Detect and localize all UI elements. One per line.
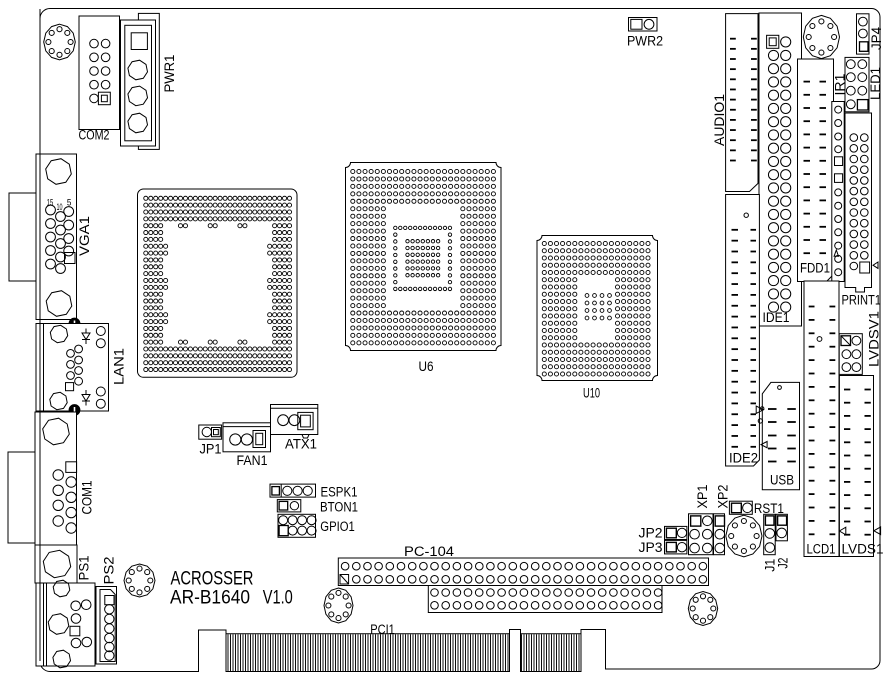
svg-text:ESPK1: ESPK1: [321, 485, 358, 501]
svg-text:10: 10: [57, 202, 63, 212]
svg-text:LVDS1: LVDS1: [842, 542, 884, 558]
svg-text:PRINT1: PRINT1: [842, 293, 882, 309]
svg-text:PS1: PS1: [77, 555, 93, 580]
svg-text:COM1: COM1: [80, 480, 96, 514]
svg-text:ATX1: ATX1: [285, 437, 317, 453]
svg-text:IDE2: IDE2: [729, 451, 758, 467]
svg-text:PWR2: PWR2: [627, 34, 663, 50]
svg-text:GPIO1: GPIO1: [320, 519, 355, 535]
svg-text:5: 5: [67, 198, 72, 208]
svg-text:XP1: XP1: [695, 484, 711, 508]
svg-text:LED1: LED1: [868, 67, 884, 100]
svg-text:PWR1: PWR1: [162, 54, 178, 92]
svg-text:COM2: COM2: [79, 128, 110, 144]
svg-text:JP4: JP4: [869, 27, 885, 50]
svg-text:JP3: JP3: [639, 540, 663, 556]
svg-text:LCD1: LCD1: [807, 542, 836, 558]
svg-text:BTON1: BTON1: [320, 500, 358, 516]
svg-text:AUDIO1: AUDIO1: [712, 94, 728, 146]
svg-text:IDE1: IDE1: [763, 310, 790, 326]
svg-text:J2: J2: [776, 558, 792, 569]
svg-text:AR-B1640: AR-B1640: [170, 587, 250, 609]
svg-text:FAN1: FAN1: [237, 453, 268, 469]
svg-text:PS2: PS2: [102, 556, 118, 584]
svg-text:PCI1: PCI1: [370, 622, 395, 638]
svg-text:15: 15: [47, 198, 54, 208]
svg-text:U6: U6: [419, 358, 434, 374]
svg-text:FDD1: FDD1: [800, 261, 830, 277]
svg-text:LVDSV1: LVDSV1: [867, 311, 883, 367]
svg-text:JP1: JP1: [200, 442, 222, 458]
svg-text:LAN1: LAN1: [112, 348, 128, 385]
svg-text:VGA1: VGA1: [77, 216, 93, 256]
svg-text:V1.0: V1.0: [263, 587, 293, 609]
svg-text:USB: USB: [770, 473, 794, 489]
svg-text:U10: U10: [583, 385, 600, 401]
